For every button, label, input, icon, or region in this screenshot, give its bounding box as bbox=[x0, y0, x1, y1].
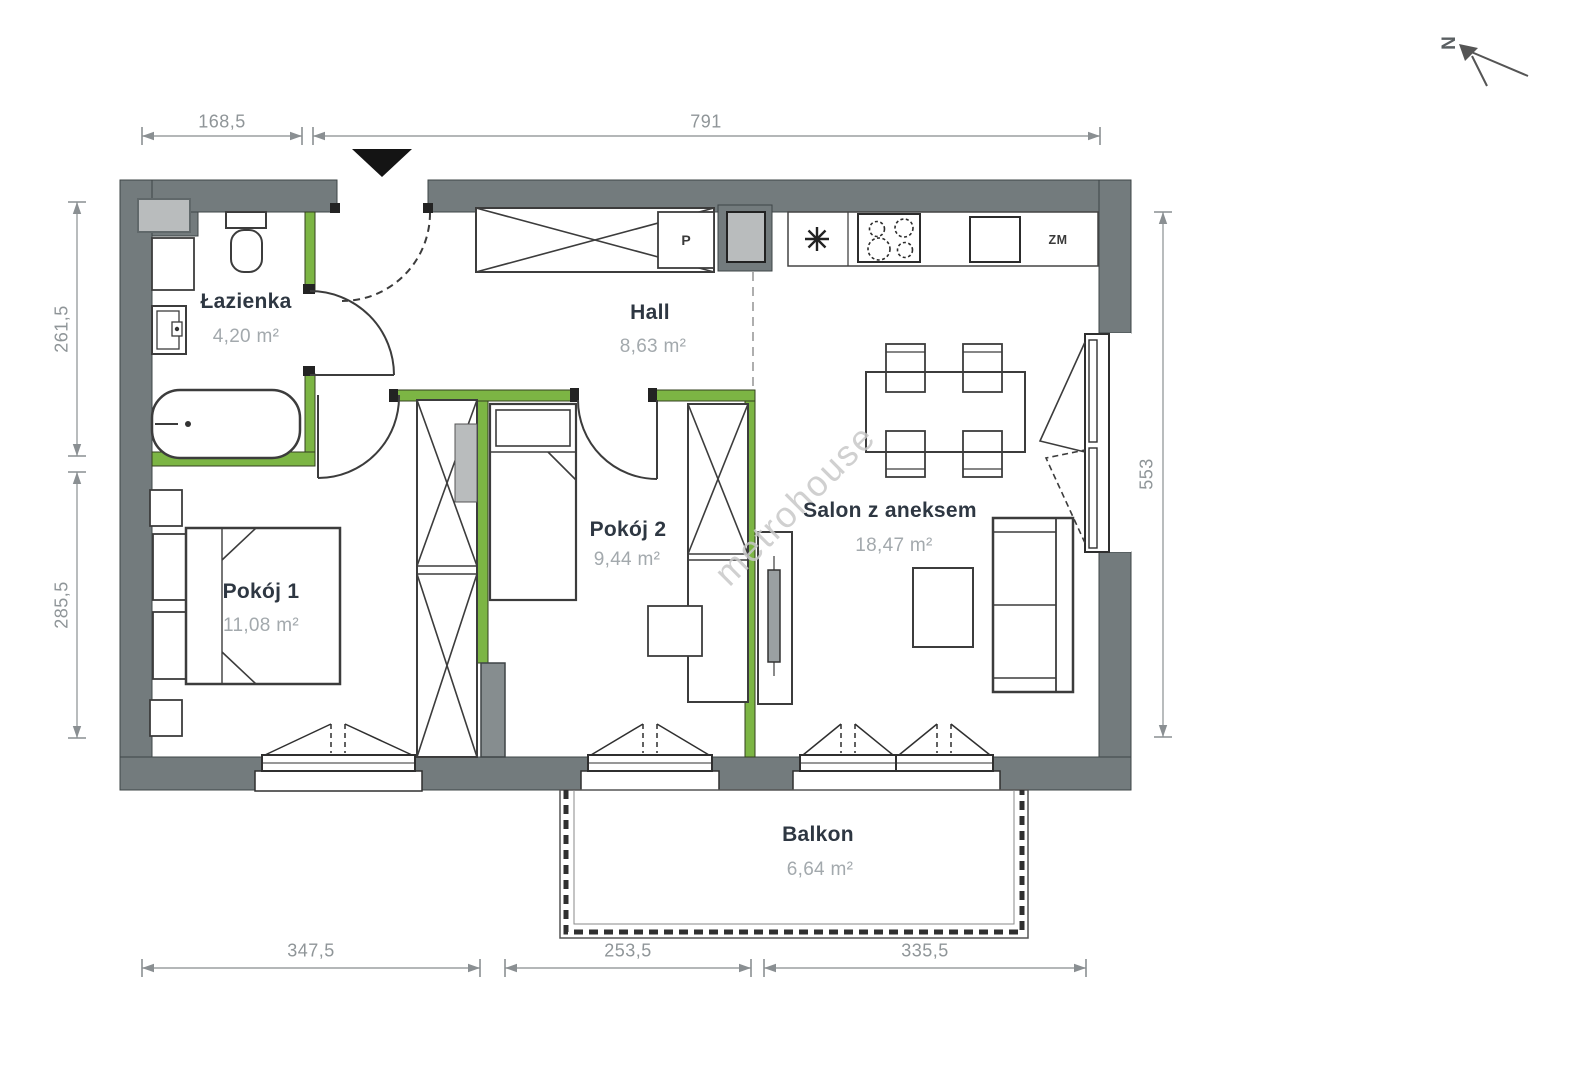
room-label-pokoj1: Pokój 1 bbox=[223, 580, 300, 604]
wall-pier bbox=[481, 663, 505, 757]
chair bbox=[886, 431, 925, 477]
sofa bbox=[993, 518, 1073, 692]
dishwasher-label: ZM bbox=[1048, 233, 1067, 247]
room1-wardrobe bbox=[417, 400, 477, 757]
entrance-door bbox=[342, 213, 430, 301]
room-area-hall: 8,63 m² bbox=[620, 336, 687, 358]
window-salon bbox=[793, 724, 1000, 791]
room2-chair bbox=[648, 606, 702, 656]
room-area-pokoj2: 9,44 m² bbox=[594, 549, 661, 571]
tv bbox=[768, 570, 780, 662]
shaft-bathroom bbox=[138, 199, 190, 232]
shaft-hall bbox=[727, 212, 765, 262]
hall-wardrobe bbox=[476, 208, 714, 272]
chair bbox=[963, 344, 1002, 392]
nightstand bbox=[150, 490, 182, 526]
room-area-salon: 18,47 m² bbox=[855, 535, 932, 557]
room-label-hall: Hall bbox=[630, 301, 670, 325]
dim-bottom-2: 253,5 bbox=[604, 941, 652, 962]
room-area-balkon: 6,64 m² bbox=[787, 859, 854, 881]
dim-top-1: 168,5 bbox=[198, 112, 246, 133]
dining-set bbox=[866, 344, 1025, 477]
room-label-lazienka: Łazienka bbox=[200, 290, 291, 314]
dim-bottom-3: 335,5 bbox=[901, 941, 949, 962]
room1-door bbox=[318, 395, 399, 478]
dishwasher bbox=[970, 217, 1020, 262]
toilet bbox=[226, 212, 266, 272]
dim-bottom-1: 347,5 bbox=[287, 941, 335, 962]
washing-machine-label: P bbox=[681, 232, 690, 248]
north-arrow-icon bbox=[1459, 44, 1528, 86]
room-label-salon: Salon z aneksem bbox=[803, 499, 977, 523]
dim-left-1: 261,5 bbox=[52, 305, 73, 353]
coffee-table bbox=[913, 568, 973, 647]
dim-left-2: 285,5 bbox=[52, 581, 73, 629]
dim-top-2: 791 bbox=[690, 112, 722, 133]
pillow bbox=[496, 410, 570, 446]
room-label-pokoj2: Pokój 2 bbox=[590, 518, 667, 542]
window-room2 bbox=[581, 724, 719, 791]
bathroom-cabinet bbox=[152, 238, 194, 290]
room-area-pokoj1: 11,08 m² bbox=[223, 615, 299, 637]
pillow bbox=[153, 612, 186, 679]
chair bbox=[963, 431, 1002, 477]
floor-plan-canvas: N metrohouse Łazienka 4,20 m² Hall 8,63 … bbox=[0, 0, 1577, 1080]
nightstand bbox=[150, 700, 182, 736]
entrance-marker-triangle bbox=[352, 149, 412, 177]
chair bbox=[886, 344, 925, 392]
dim-right-1: 553 bbox=[1137, 458, 1158, 490]
kitchen-sink-icon bbox=[805, 227, 829, 251]
room-label-balkon: Balkon bbox=[782, 823, 854, 847]
room2-door bbox=[578, 400, 657, 479]
room1-bed bbox=[150, 490, 340, 736]
room-area-lazienka: 4,20 m² bbox=[213, 326, 280, 348]
room2-bed bbox=[490, 404, 576, 600]
stove bbox=[858, 214, 920, 262]
bathtub bbox=[152, 390, 300, 458]
washbasin bbox=[152, 306, 186, 354]
bathroom-door bbox=[310, 291, 394, 375]
pillow bbox=[153, 534, 186, 600]
window-room1 bbox=[255, 724, 422, 791]
north-label: N bbox=[1439, 36, 1461, 50]
